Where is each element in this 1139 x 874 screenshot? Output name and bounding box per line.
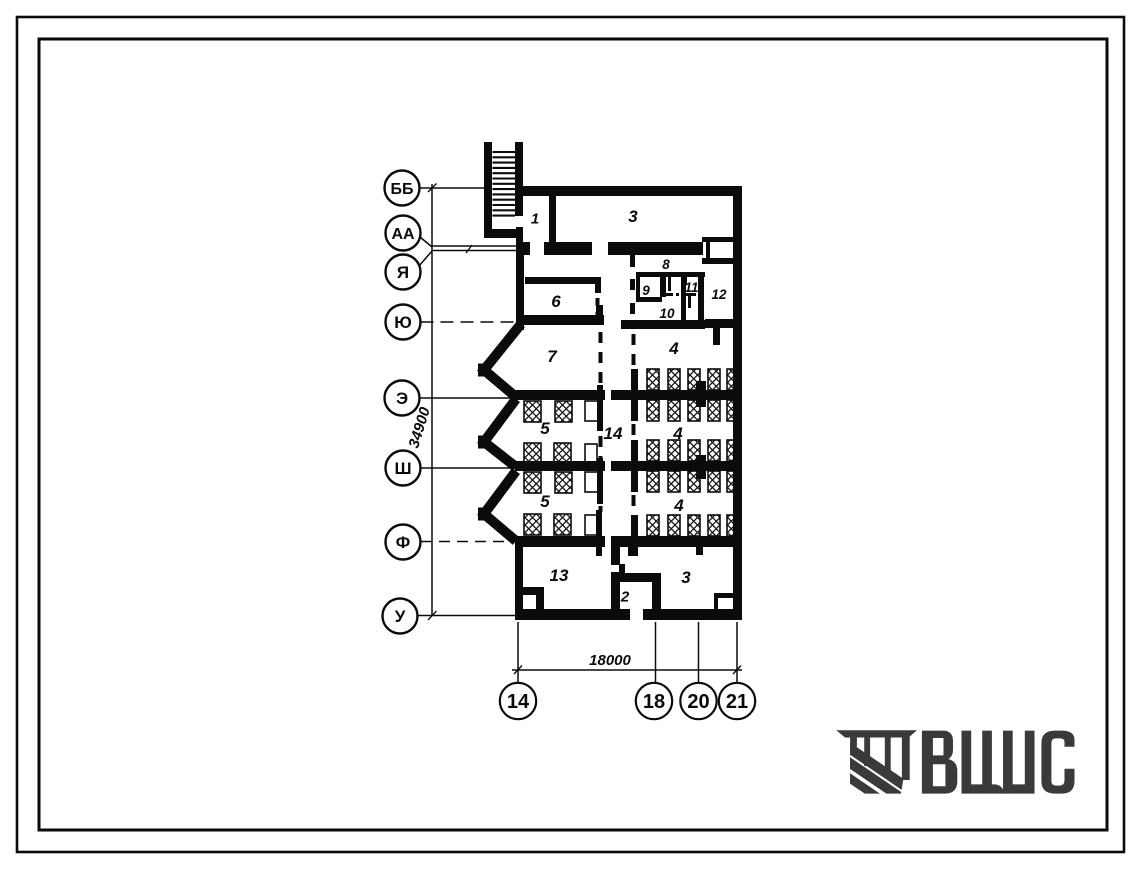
svg-text:Ш: Ш bbox=[394, 459, 411, 478]
svg-text:Ф: Ф bbox=[396, 533, 411, 552]
svg-text:3: 3 bbox=[681, 568, 691, 587]
svg-text:1: 1 bbox=[531, 210, 539, 227]
svg-text:20: 20 bbox=[687, 691, 709, 713]
svg-text:12: 12 bbox=[711, 287, 727, 302]
svg-text:18: 18 bbox=[643, 691, 665, 713]
svg-text:4: 4 bbox=[673, 496, 684, 515]
svg-text:5: 5 bbox=[540, 419, 550, 438]
svg-text:9: 9 bbox=[642, 283, 650, 298]
svg-text:18000: 18000 bbox=[589, 652, 631, 669]
svg-text:2: 2 bbox=[620, 588, 630, 605]
svg-text:4: 4 bbox=[672, 424, 683, 443]
svg-text:Э: Э bbox=[396, 389, 408, 408]
svg-text:7: 7 bbox=[547, 347, 558, 366]
svg-text:Ю: Ю bbox=[394, 313, 412, 332]
svg-text:ББ: ББ bbox=[391, 181, 414, 198]
svg-text:Я: Я bbox=[397, 263, 409, 282]
svg-text:21: 21 bbox=[726, 691, 748, 713]
svg-text:14: 14 bbox=[507, 691, 530, 713]
svg-text:6: 6 bbox=[551, 292, 561, 311]
svg-text:8: 8 bbox=[662, 257, 670, 272]
svg-text:10: 10 bbox=[659, 306, 675, 321]
svg-text:13: 13 bbox=[550, 566, 569, 585]
svg-text:11: 11 bbox=[684, 280, 698, 295]
svg-text:5: 5 bbox=[540, 492, 550, 511]
svg-text:14: 14 bbox=[604, 424, 623, 443]
svg-text:4: 4 bbox=[668, 339, 679, 358]
svg-text:3: 3 bbox=[628, 207, 638, 226]
svg-text:АА: АА bbox=[391, 226, 415, 243]
svg-text:У: У bbox=[395, 607, 406, 626]
